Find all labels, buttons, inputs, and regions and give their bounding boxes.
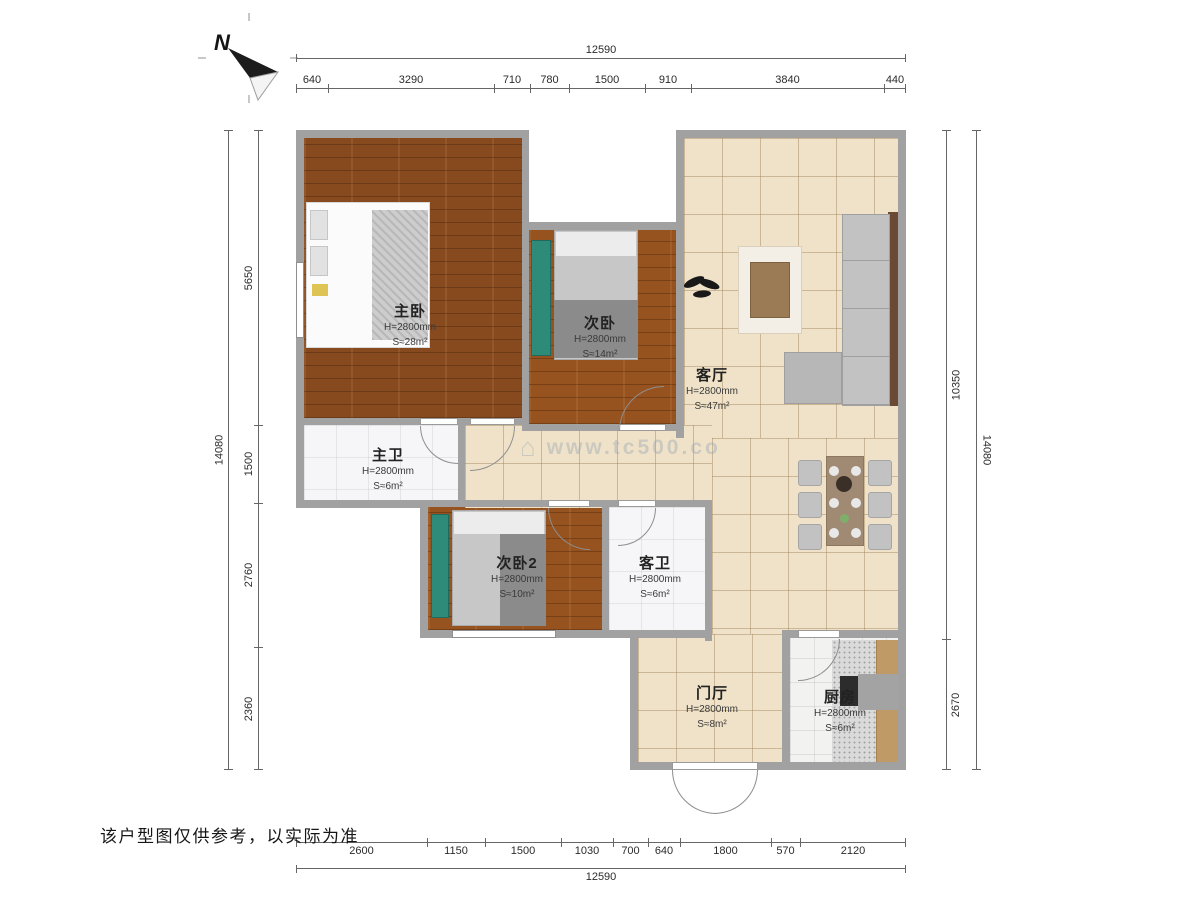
dimension-bottom-segments: 2600 1150 1500 1030 700 640 1800 570 212… bbox=[296, 842, 906, 859]
dimension-value: 700 bbox=[613, 843, 648, 859]
dining-chair bbox=[798, 492, 822, 518]
dimension-left-segments: 5650 1500 2760 2360 bbox=[240, 130, 259, 770]
master-bedroom-door bbox=[470, 418, 515, 425]
dimension-value: 1030 bbox=[561, 843, 613, 859]
plate bbox=[829, 498, 839, 508]
dimension-value: 2120 bbox=[800, 843, 906, 859]
wall-segment bbox=[296, 130, 529, 138]
pillow bbox=[556, 232, 636, 256]
wall-segment bbox=[458, 425, 465, 500]
disclaimer-text: 该户型图仅供参考，以实际为准 bbox=[100, 822, 359, 847]
dimension-value: 1500 bbox=[569, 72, 645, 88]
room-area: S≈8m² bbox=[662, 718, 762, 733]
wall-segment bbox=[522, 424, 618, 431]
dimension-value: 12590 bbox=[586, 871, 617, 883]
room-area: S≈47m² bbox=[660, 400, 764, 415]
dimension-value: 1150 bbox=[427, 843, 485, 859]
room-name: 次卧2 bbox=[462, 552, 572, 573]
room-height: H=2800mm bbox=[605, 573, 705, 588]
room-height: H=2800mm bbox=[350, 321, 470, 336]
wall-segment bbox=[515, 418, 522, 425]
room-label-living-room: 客厅 H=2800mm S≈47m² bbox=[660, 364, 764, 414]
plate bbox=[829, 528, 839, 538]
room-name: 客卫 bbox=[605, 552, 705, 573]
dimension-value: 640 bbox=[296, 72, 328, 88]
room-label-bedroom-2: 次卧 H=2800mm S≈14m² bbox=[545, 312, 655, 362]
coffee-table bbox=[750, 262, 790, 318]
room-area: S≈14m² bbox=[545, 348, 655, 363]
dimension-bottom-total: 12590 bbox=[296, 868, 906, 883]
wall-segment bbox=[522, 130, 529, 431]
wall-segment bbox=[898, 130, 906, 770]
dimension-value: 14080 bbox=[210, 130, 228, 770]
window bbox=[452, 630, 556, 638]
wall-segment bbox=[705, 500, 712, 641]
room-height: H=2800mm bbox=[545, 333, 655, 348]
room-height: H=2800mm bbox=[788, 707, 892, 722]
dimension-value: 10350 bbox=[947, 130, 965, 639]
dimension-value: 1500 bbox=[240, 425, 258, 503]
wall-segment bbox=[630, 634, 638, 770]
sofa bbox=[842, 214, 890, 406]
dimension-top-segments: 640 3290 710 780 1500 910 3840 440 bbox=[296, 72, 906, 89]
dining-chair bbox=[868, 492, 892, 518]
room-area: S≈28m² bbox=[350, 336, 470, 351]
dimension-value: 710 bbox=[494, 72, 530, 88]
room-name: 主卧 bbox=[350, 300, 470, 321]
room-name: 门厅 bbox=[662, 682, 762, 703]
table-centerpiece bbox=[836, 476, 852, 492]
dimension-value: 640 bbox=[648, 843, 680, 859]
pillow bbox=[310, 246, 328, 276]
ceiling-fan-icon bbox=[682, 270, 722, 309]
room-label-master-bedroom: 主卧 H=2800mm S≈28m² bbox=[350, 300, 470, 350]
floor-plan-canvas: N bbox=[0, 0, 1200, 900]
room-name: 次卧 bbox=[545, 312, 655, 333]
dimension-value: 440 bbox=[884, 72, 906, 88]
dining-chair bbox=[798, 524, 822, 550]
dining-chair bbox=[868, 524, 892, 550]
room-label-entry-hall: 门厅 H=2800mm S≈8m² bbox=[662, 682, 762, 732]
bedroom-3-door bbox=[548, 500, 590, 507]
north-label-glyph: N bbox=[214, 30, 231, 55]
wall-segment bbox=[428, 500, 548, 507]
window bbox=[296, 262, 304, 338]
wall-segment bbox=[758, 762, 906, 770]
wall-segment bbox=[590, 500, 609, 507]
dimension-value: 1800 bbox=[680, 843, 771, 859]
room-name: 客厅 bbox=[660, 364, 764, 385]
kitchen-door bbox=[798, 630, 840, 638]
yellow-cushion bbox=[312, 284, 328, 296]
plant-decor bbox=[840, 514, 849, 523]
dimension-top-total: 12590 bbox=[296, 44, 906, 59]
entry-double-door bbox=[672, 762, 758, 770]
wardrobe bbox=[431, 514, 449, 618]
dimension-value: 12590 bbox=[586, 44, 617, 56]
wall-segment bbox=[522, 222, 684, 230]
room-area: S≈6m² bbox=[336, 480, 440, 495]
wall-segment bbox=[420, 500, 428, 638]
room-label-kitchen: 厨房 H=2800mm S≈6m² bbox=[788, 686, 892, 736]
wall-segment bbox=[638, 630, 712, 638]
wall-segment bbox=[656, 500, 712, 507]
room-name: 厨房 bbox=[788, 686, 892, 707]
room-label-bedroom-3: 次卧2 H=2800mm S≈10m² bbox=[462, 552, 572, 602]
pillow bbox=[454, 512, 544, 534]
dimension-right-total: 14080 bbox=[976, 130, 995, 770]
dimension-value: 14080 bbox=[977, 130, 995, 770]
pillow bbox=[310, 210, 328, 240]
dimension-value: 570 bbox=[771, 843, 800, 859]
room-label-guest-bath: 客卫 H=2800mm S≈6m² bbox=[605, 552, 705, 602]
dimension-value: 3290 bbox=[328, 72, 494, 88]
dining-chair bbox=[868, 460, 892, 486]
door-swing-arc bbox=[672, 770, 716, 814]
room-height: H=2800mm bbox=[462, 573, 572, 588]
room-height: H=2800mm bbox=[660, 385, 764, 400]
dimension-value: 2670 bbox=[947, 639, 965, 770]
dimension-value: 2360 bbox=[240, 647, 258, 770]
dimension-value: 1500 bbox=[485, 843, 561, 859]
north-arrow: N bbox=[192, 10, 302, 106]
wall-segment bbox=[782, 630, 798, 638]
dimension-right-segments: 10350 2670 bbox=[946, 130, 965, 770]
plate bbox=[851, 466, 861, 476]
wall-segment bbox=[676, 130, 906, 138]
dimension-left-total: 14080 bbox=[210, 130, 229, 770]
door-swing-arc bbox=[714, 770, 758, 814]
dimension-value: 910 bbox=[645, 72, 691, 88]
sofa-chaise bbox=[784, 352, 842, 404]
wall-segment bbox=[609, 500, 618, 507]
room-area: S≈10m² bbox=[462, 588, 572, 603]
dimension-value: 2760 bbox=[240, 503, 258, 647]
wall-segment bbox=[840, 630, 898, 638]
wall-segment bbox=[296, 500, 428, 508]
guest-bath-door bbox=[618, 500, 656, 507]
plate bbox=[829, 466, 839, 476]
wall-segment bbox=[676, 130, 684, 230]
room-label-master-bath: 主卫 H=2800mm S≈6m² bbox=[336, 444, 440, 494]
plate bbox=[851, 528, 861, 538]
room-name: 主卫 bbox=[336, 444, 440, 465]
dimension-value: 5650 bbox=[240, 130, 258, 425]
wall-segment bbox=[458, 418, 470, 425]
wall-segment bbox=[296, 418, 420, 425]
dimension-value: 3840 bbox=[691, 72, 884, 88]
dimension-value: 780 bbox=[530, 72, 569, 88]
room-area: S≈6m² bbox=[605, 588, 705, 603]
room-area: S≈6m² bbox=[788, 722, 892, 737]
room-height: H=2800mm bbox=[662, 703, 762, 718]
master-bath-door bbox=[420, 418, 458, 425]
dining-chair bbox=[798, 460, 822, 486]
plate bbox=[851, 498, 861, 508]
room-height: H=2800mm bbox=[336, 465, 440, 480]
